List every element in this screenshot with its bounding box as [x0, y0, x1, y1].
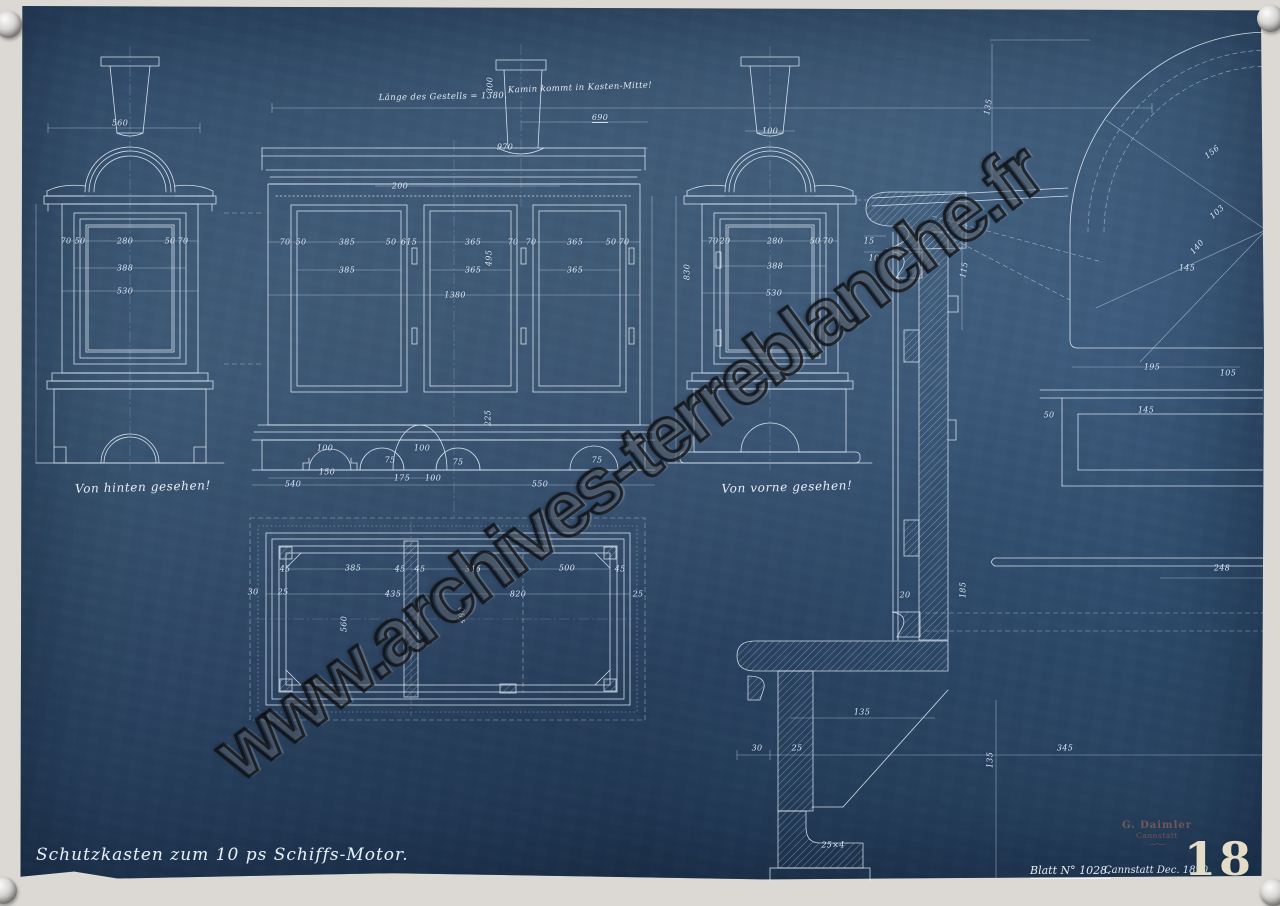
pushpin-top-right — [1257, 5, 1280, 32]
front-view-caption: Von vorne gesehen! — [721, 478, 852, 495]
back-view-caption: Von hinten gesehen! — [75, 478, 211, 496]
page-number: 18 — [1184, 832, 1254, 886]
sheet-number: Blatt N° 1028. — [1030, 864, 1111, 879]
pushpin-top-left — [0, 11, 22, 38]
pushpin-bottom-right — [1260, 879, 1280, 906]
drawing-title: Schutzkasten zum 10 ps Schiffs-Motor. — [36, 845, 409, 865]
frame-length-note: Länge des Gestells = 1380. — [379, 91, 508, 103]
chimney-position-note: Kamin kommt in Kasten-Mitte! — [508, 80, 653, 95]
photograph-of-blueprint: { "document": { "title": "Schutzkasten z… — [0, 0, 1280, 897]
pushpin-bottom-left — [0, 877, 17, 904]
stamp-name: G. Daimler — [1102, 820, 1212, 831]
